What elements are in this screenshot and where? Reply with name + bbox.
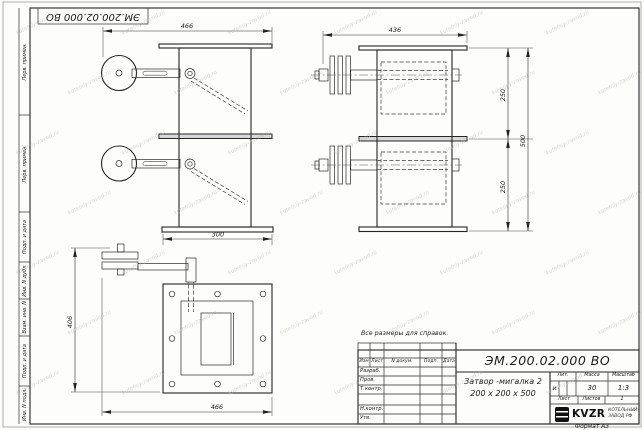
lever-arm-upper xyxy=(132,69,180,78)
side-bottom-flange xyxy=(359,227,467,232)
plan-flange xyxy=(163,284,272,393)
mass-value: 30 xyxy=(576,381,608,396)
role-developed: Разраб. xyxy=(358,367,384,376)
reference-note: Все размеры для справок. xyxy=(361,330,456,339)
company-logo: KVZR КОТЕЛЬНЫЙ ЗАВОД РФ xyxy=(552,404,639,424)
role-approved: Утв. xyxy=(358,414,384,424)
side-lower-height-dim: 250 xyxy=(499,181,507,193)
plan-bottom-width-dim: 466 xyxy=(211,403,223,411)
role-checked: Пров. xyxy=(358,376,384,385)
scale-header: Масштаб xyxy=(608,372,639,381)
front-overall-width-dim: 466 xyxy=(181,22,193,30)
sheets-value: 1 xyxy=(605,396,639,404)
col-header-list: Лист xyxy=(370,358,384,367)
margin-label: Подп. и дата xyxy=(22,220,28,254)
role-t-control: Т.контр. xyxy=(358,385,384,394)
margin-first-use-2: Перв. примен. xyxy=(19,115,30,212)
margin-inv-dupl: Инв. N дубл. xyxy=(19,262,30,299)
margin-label: Инв. N дубл. xyxy=(22,264,28,297)
side-total-height-dim: 500 xyxy=(519,135,527,147)
plan-flap xyxy=(201,313,231,365)
margin-label: Перв. примен. xyxy=(22,43,28,81)
side-overall-width-dim: 436 xyxy=(389,26,401,34)
margin-label: Инв. N подл. xyxy=(22,388,28,421)
part-name-line2: 200 х 200 х 500 xyxy=(456,388,550,400)
pivot-bearing-lower xyxy=(185,159,195,169)
col-header-doc: N докум. xyxy=(384,358,420,367)
role-n-control: Н.контр. xyxy=(358,405,384,414)
front-middle-flange xyxy=(159,134,272,139)
drawing-sheet: 466 300 436 xyxy=(0,0,644,430)
lever-arm-lower xyxy=(132,160,180,169)
mass-header: Масса xyxy=(576,372,608,381)
kvzr-logo-text: KVZR xyxy=(572,408,605,420)
side-upper-height-dim: 250 xyxy=(499,89,507,101)
scale-value: 1:3 xyxy=(608,381,639,396)
margin-inv-orig: Инв. N подл. xyxy=(19,386,30,424)
margin-label: Взам. инв. N xyxy=(22,301,28,334)
shaft-assembly-lower xyxy=(311,146,462,204)
side-top-flange xyxy=(359,46,467,50)
document-designation: ЭМ.200.02.000 ВО xyxy=(456,350,639,372)
counterweight-disc-lower xyxy=(102,146,137,181)
lit-value: и xyxy=(550,381,559,396)
margin-repl-inv: Взам. инв. N xyxy=(19,299,30,336)
part-name-line1: Затвор -мигалка 2 xyxy=(456,376,550,388)
lit-header: Лит. xyxy=(550,372,576,381)
front-view: 466 300 xyxy=(102,22,274,245)
corner-designation: ЭМ.200.02.000 ВО xyxy=(38,8,148,24)
front-flange-width-dim: 300 xyxy=(212,231,224,239)
margin-sign-date-2: Подп. и дата xyxy=(19,336,30,386)
sheets-label: Листов xyxy=(578,396,605,404)
front-top-flange xyxy=(159,44,272,48)
margin-label: Перв. примен. xyxy=(22,145,28,183)
col-header-sign: Подп. xyxy=(420,358,442,367)
plan-opening xyxy=(181,301,253,375)
shaft-assembly-upper xyxy=(311,56,462,114)
logo-sub-line1: КОТЕЛЬНЫЙ xyxy=(608,409,637,414)
kvzr-logo-icon xyxy=(555,407,569,422)
pivot-bearing-upper xyxy=(185,69,195,79)
plan-view: 406 466 xyxy=(66,244,272,416)
counterweight-disc-upper xyxy=(102,56,137,91)
logo-sub-line2: ЗАВОД РФ xyxy=(608,415,637,420)
plan-counterweight xyxy=(102,244,196,312)
margin-sign-date-1: Подп. и дата xyxy=(19,212,30,262)
col-header-date: Дата xyxy=(442,358,456,367)
plan-left-height-dim: 406 xyxy=(66,316,74,328)
margin-first-use-1: Перв. примен. xyxy=(19,8,30,115)
kvzr-logo-subtext: КОТЕЛЬНЫЙ ЗАВОД РФ xyxy=(608,409,637,419)
format-label: Формат А3 xyxy=(545,424,639,430)
side-view: 436 xyxy=(311,26,533,232)
sheet-label: Лист xyxy=(550,396,578,404)
side-middle-flange xyxy=(359,137,467,142)
col-header-izm: Изм xyxy=(358,358,370,367)
margin-label: Подп. и дата xyxy=(22,344,28,378)
